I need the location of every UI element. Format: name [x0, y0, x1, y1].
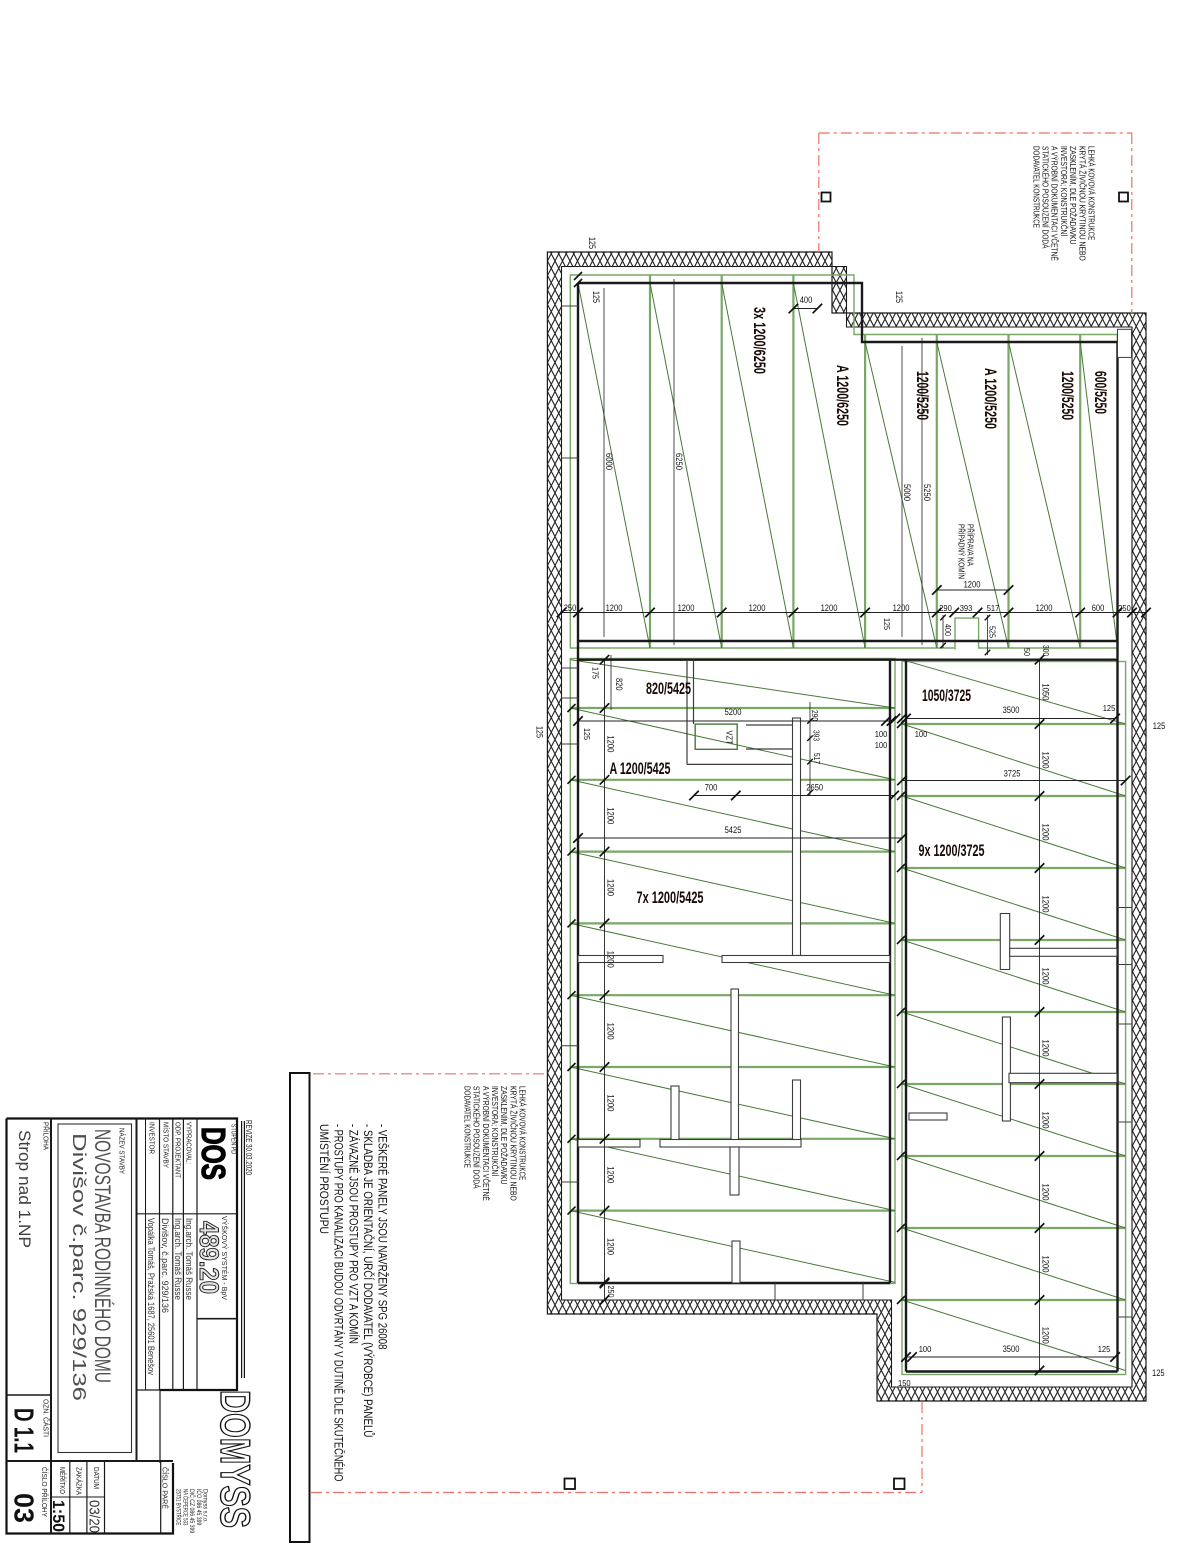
svg-text:1200: 1200 [606, 879, 616, 896]
svg-text:1200: 1200 [1041, 1040, 1051, 1057]
svg-text:700: 700 [705, 783, 718, 793]
svg-text:KRYTÁ ŽIVIČNOU KRYTINOU NEBO: KRYTÁ ŽIVIČNOU KRYTINOU NEBO [1077, 146, 1086, 261]
svg-text:Domyss s.r.o.: Domyss s.r.o. [202, 1489, 208, 1523]
svg-text:ČÍSLO PŘÍLOHY: ČÍSLO PŘÍLOHY [40, 1467, 49, 1517]
svg-text:3x 1200/6250: 3x 1200/6250 [750, 307, 769, 374]
svg-text:125: 125 [882, 618, 892, 630]
svg-text:PŘÍPADNÝ KOMÍN: PŘÍPADNÝ KOMÍN [957, 524, 966, 579]
svg-text:Ing.arch. Tomáš Russe: Ing.arch. Tomáš Russe [184, 1218, 194, 1300]
svg-text:NA ČEPERCE 533: NA ČEPERCE 533 [181, 1489, 188, 1526]
svg-text:25751 BYSTŘICE: 25751 BYSTŘICE [175, 1489, 183, 1525]
svg-text:1200: 1200 [964, 580, 981, 590]
svg-text:ZAKÁZKA: ZAKÁZKA [75, 1467, 84, 1495]
svg-text:1200: 1200 [749, 603, 766, 613]
svg-text:DATUM: DATUM [92, 1467, 101, 1489]
svg-text:1200: 1200 [1041, 1327, 1051, 1344]
svg-text:ČÍSLO PARÉ: ČÍSLO PARÉ [161, 1467, 170, 1509]
svg-text:REVIZE 30.03.2020: REVIZE 30.03.2020 [244, 1120, 254, 1175]
svg-text:A VÝROBNÍ DOKUMENTACI VČETNĚ: A VÝROBNÍ DOKUMENTACI VČETNĚ [1050, 146, 1059, 261]
svg-text:1200: 1200 [1041, 824, 1051, 841]
svg-text:820/5425: 820/5425 [646, 679, 691, 698]
svg-text:PŘÍPRAVA NA: PŘÍPRAVA NA [966, 524, 975, 567]
svg-text:393: 393 [960, 603, 973, 613]
svg-text:NOVOSTAVBA RODINNÉHO DOMU: NOVOSTAVBA RODINNÉHO DOMU [90, 1129, 115, 1383]
svg-text:DODAVATEL KONSTRUKCE: DODAVATEL KONSTRUKCE [1031, 146, 1040, 228]
svg-text:1200: 1200 [893, 603, 910, 613]
svg-text:INVESTORA; KONSTRUKČNÍ: INVESTORA; KONSTRUKČNÍ [1059, 146, 1068, 237]
svg-text:600: 600 [1092, 603, 1105, 613]
svg-text:A 1200/5250: A 1200/5250 [981, 368, 1000, 429]
svg-text:Divišov, č.parc. 929/136: Divišov, č.parc. 929/136 [160, 1218, 170, 1313]
svg-text:NÁZEV STAVBY: NÁZEV STAVBY [118, 1128, 127, 1174]
svg-text:INVESTORA; KONSTRUKČNÍ: INVESTORA; KONSTRUKČNÍ [490, 1086, 499, 1177]
svg-text:- SKLADBA JE ORIENTAČNÍ, URČÍ: - SKLADBA JE ORIENTAČNÍ, URČÍ DODAVATEL … [361, 1124, 374, 1438]
svg-text:489.20: 489.20 [194, 1221, 224, 1294]
svg-text:1050/3725: 1050/3725 [922, 686, 971, 705]
svg-text:A 1200/6250: A 1200/6250 [833, 365, 852, 426]
svg-text:1200: 1200 [606, 1238, 616, 1255]
svg-text:175: 175 [591, 667, 601, 679]
svg-text:MĚŘÍTKO: MĚŘÍTKO [58, 1467, 67, 1494]
svg-text:290: 290 [939, 603, 952, 613]
svg-text:DOS: DOS [195, 1127, 232, 1180]
svg-text:517: 517 [987, 603, 1000, 613]
svg-text:100: 100 [875, 740, 888, 750]
svg-text:1050: 1050 [1041, 683, 1051, 700]
svg-text:1200: 1200 [606, 951, 616, 968]
svg-text:STATICKÉHO POSOUZENÍ DODÁ: STATICKÉHO POSOUZENÍ DODÁ [1041, 146, 1050, 249]
svg-text:DODAVATEL KONSTRUKCE: DODAVATEL KONSTRUKCE [462, 1086, 471, 1168]
svg-text:5000: 5000 [902, 484, 912, 501]
svg-text:3500: 3500 [1003, 1344, 1020, 1354]
svg-text:ODP. PROJEKTANT: ODP. PROJEKTANT [174, 1122, 183, 1178]
svg-text:VYPRACOVAL:: VYPRACOVAL: [185, 1122, 194, 1164]
svg-text:9x 1200/3725: 9x 1200/3725 [919, 841, 985, 860]
svg-text:1200: 1200 [606, 807, 616, 824]
svg-text:125: 125 [591, 291, 601, 303]
svg-text:D 1.1: D 1.1 [9, 1408, 40, 1453]
svg-text:300: 300 [1041, 645, 1050, 656]
svg-text:03/20: 03/20 [86, 1500, 103, 1533]
svg-text:250: 250 [1118, 603, 1131, 613]
svg-text:3725: 3725 [1004, 769, 1021, 779]
svg-text:ZASKLENÍM, DLE POŽADAVKU: ZASKLENÍM, DLE POŽADAVKU [1068, 146, 1077, 245]
svg-text:1200/5250: 1200/5250 [913, 371, 932, 420]
svg-text:100: 100 [915, 729, 928, 739]
svg-text:Ing.arch. Tomáš Russe: Ing.arch. Tomáš Russe [173, 1218, 183, 1300]
svg-text:1200: 1200 [606, 1166, 616, 1183]
svg-text:- ZÁVAZNÉ JSOU PROSTUPY PRO V: - ZÁVAZNÉ JSOU PROSTUPY PRO VZT A KOMÍN [346, 1124, 359, 1344]
svg-text:100: 100 [919, 1344, 932, 1354]
svg-text:ZASKLENÍM, DLE POŽADAVKU: ZASKLENÍM, DLE POŽADAVKU [499, 1086, 508, 1185]
svg-text:125: 125 [1153, 721, 1166, 731]
svg-text:600/5250: 600/5250 [1091, 371, 1110, 414]
svg-text:1200: 1200 [606, 603, 623, 613]
svg-text:6250: 6250 [674, 453, 684, 470]
svg-text:125: 125 [894, 291, 904, 303]
svg-text:1200: 1200 [1041, 1112, 1051, 1129]
svg-text:517: 517 [812, 753, 821, 764]
svg-text:525: 525 [988, 626, 998, 638]
svg-text:3500: 3500 [1003, 705, 1020, 715]
svg-text:DIČ CZ 086 45 399: DIČ CZ 086 45 399 [188, 1489, 195, 1534]
svg-text:2650: 2650 [806, 783, 823, 793]
svg-text:50: 50 [1022, 648, 1031, 656]
svg-text:290: 290 [810, 710, 819, 721]
svg-text:125: 125 [1098, 1344, 1111, 1354]
svg-text:- VEŠKERÉ PANELY JSOU NAVRŽEN: - VEŠKERÉ PANELY JSOU NAVRŽENY SPG 26008 [376, 1124, 389, 1350]
svg-text:5200: 5200 [725, 707, 742, 717]
svg-text:150: 150 [898, 1378, 911, 1388]
svg-text:UMÍSTĚNÍ PROSTUPU: UMÍSTĚNÍ PROSTUPU [317, 1124, 330, 1234]
svg-text:1200: 1200 [1036, 603, 1053, 613]
svg-text:03: 03 [9, 1493, 40, 1523]
svg-text:250: 250 [564, 603, 577, 613]
svg-text:LEHKÁ KOVOVÁ KONSTRUKCE: LEHKÁ KOVOVÁ KONSTRUKCE [518, 1086, 527, 1180]
svg-text:Strop nad 1.NP: Strop nad 1.NP [15, 1130, 34, 1248]
svg-text:Vopálka Tomáš, Pražská 1687, 2: Vopálka Tomáš, Pražská 1687, 25601 Beneš… [146, 1218, 156, 1375]
svg-text:KRYTÁ ŽIVIČNOU KRYTINOU NEBO: KRYTÁ ŽIVIČNOU KRYTINOU NEBO [508, 1086, 517, 1201]
svg-text:393: 393 [812, 730, 821, 741]
svg-text:250: 250 [606, 1286, 616, 1298]
svg-text:1200: 1200 [1041, 896, 1051, 913]
svg-text:OZN. ČÁSTI: OZN. ČÁSTI [42, 1399, 51, 1437]
svg-text:STATICKÉHO POSOUZENÍ DODÁ: STATICKÉHO POSOUZENÍ DODÁ [472, 1086, 481, 1189]
svg-text:LEHKÁ KOVOVÁ KONSTRUKCE: LEHKÁ KOVOVÁ KONSTRUKCE [1087, 146, 1096, 240]
svg-text:5250: 5250 [922, 484, 932, 501]
svg-text:1:50: 1:50 [49, 1500, 68, 1532]
svg-text:1200: 1200 [606, 1094, 616, 1111]
svg-text:- PROSTUPY PRO KANALIZACI BUD: - PROSTUPY PRO KANALIZACI BUDOU ODVRTÁNY… [332, 1124, 345, 1482]
svg-text:A VÝROBNÍ DOKUMENTACI VČETNĚ: A VÝROBNÍ DOKUMENTACI VČETNĚ [481, 1086, 490, 1201]
svg-text:A 1200/5425: A 1200/5425 [610, 759, 671, 778]
svg-text:6000: 6000 [604, 453, 614, 470]
svg-text:1200: 1200 [1041, 968, 1051, 985]
svg-text:INVESTOR: INVESTOR [148, 1122, 157, 1154]
svg-text:1200: 1200 [1041, 1184, 1051, 1201]
svg-text:400: 400 [943, 624, 953, 636]
svg-text:400: 400 [800, 295, 813, 305]
svg-text:IČO 086 45 399: IČO 086 45 399 [195, 1489, 202, 1526]
svg-text:1200: 1200 [1041, 1256, 1051, 1273]
svg-text:1200: 1200 [1041, 752, 1051, 769]
svg-text:1200/5250: 1200/5250 [1058, 371, 1077, 420]
svg-text:1200: 1200 [821, 603, 838, 613]
svg-text:5425: 5425 [725, 825, 742, 835]
svg-text:MÍSTO STAVBY: MÍSTO STAVBY [162, 1122, 171, 1168]
svg-text:VZT: VZT [725, 731, 734, 745]
svg-text:125: 125 [587, 237, 597, 249]
svg-text:125: 125 [582, 728, 592, 740]
svg-text:125: 125 [535, 726, 545, 738]
svg-text:125: 125 [1152, 1368, 1165, 1378]
svg-text:100: 100 [875, 729, 888, 739]
svg-text:PŘÍLOHA: PŘÍLOHA [42, 1122, 51, 1150]
svg-text:1200: 1200 [606, 735, 616, 752]
svg-text:7x 1200/5425: 7x 1200/5425 [637, 888, 704, 907]
svg-text:820: 820 [614, 678, 624, 691]
svg-text:Divišov č.parc. 929/136: Divišov č.parc. 929/136 [69, 1133, 89, 1401]
svg-text:1200: 1200 [678, 603, 695, 613]
svg-text:125: 125 [1103, 703, 1116, 713]
svg-text:DOMYSS: DOMYSS [212, 1390, 259, 1528]
svg-text:1200: 1200 [606, 1023, 616, 1040]
